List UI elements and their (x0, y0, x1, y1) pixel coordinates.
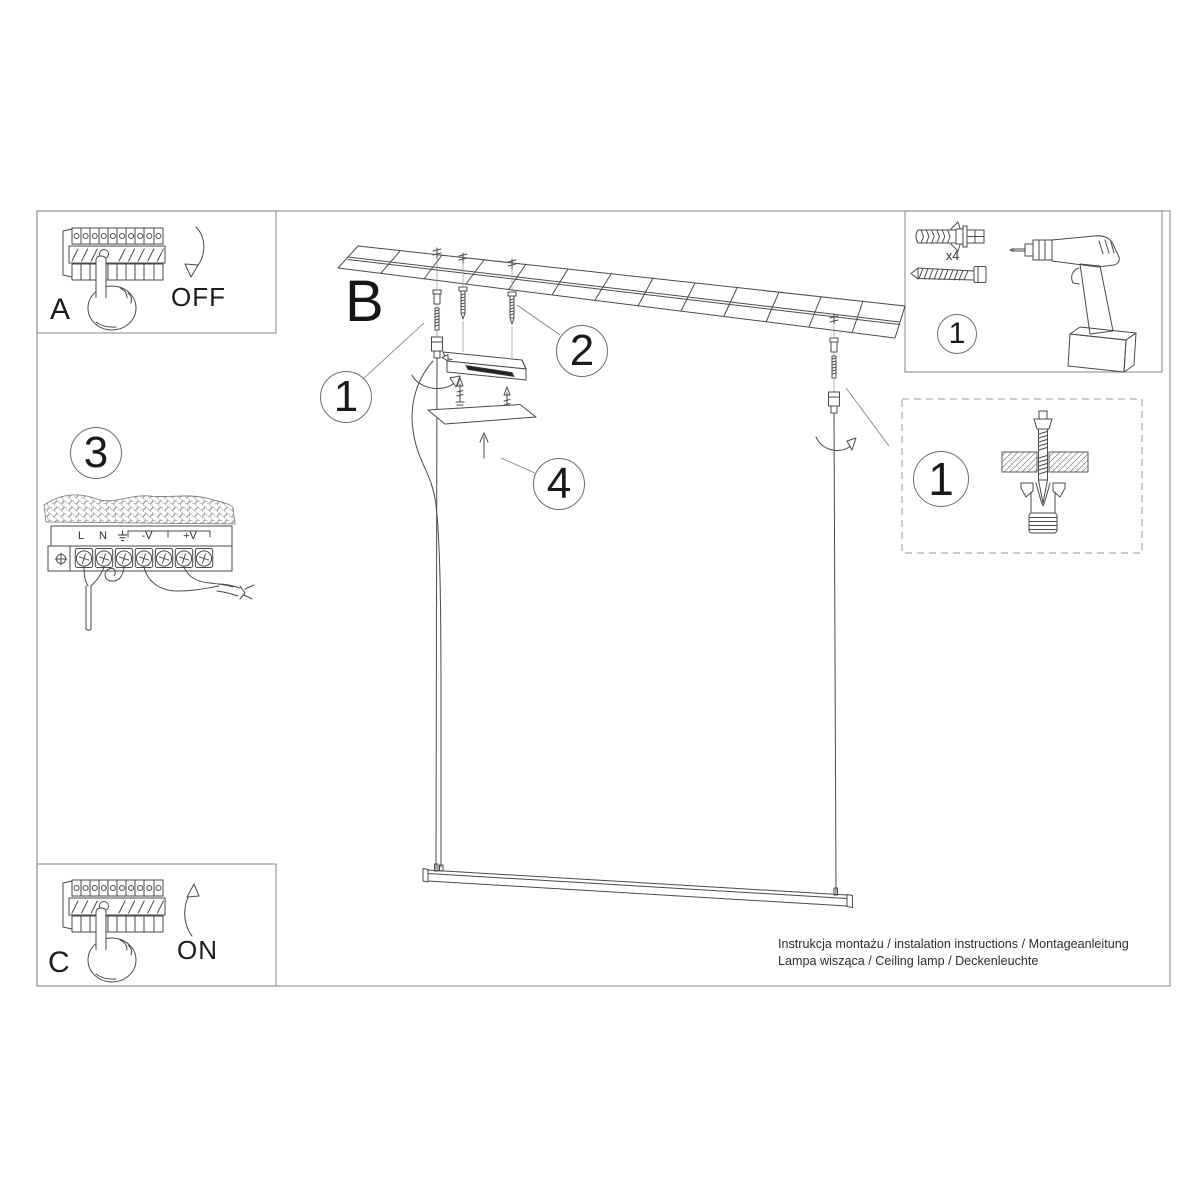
callout-suspension-left: 1 (320, 371, 372, 423)
callout-number: 3 (84, 428, 108, 478)
perforated-plate (44, 495, 235, 524)
up-arrow-icon (480, 433, 488, 458)
cover-plate (428, 405, 536, 425)
terminal-label-minusV: -V (142, 531, 153, 542)
wall-anchor (916, 222, 984, 251)
mounting-screw (459, 287, 467, 319)
threaded-stud (433, 290, 441, 330)
terminal-label-N: N (99, 531, 107, 542)
polarity-bracket (128, 531, 210, 537)
panel-c-label: C (48, 948, 70, 978)
wire-gripper (432, 337, 443, 358)
terminal-screws (75, 549, 212, 568)
anchor-quantity-label: x4 (946, 250, 959, 263)
on-arrow-icon (185, 884, 199, 936)
leader-lines (363, 305, 889, 473)
footer-line-2: Lampa wisząca / Ceiling lamp / Deckenleu… (778, 953, 1129, 970)
panel-a-label: A (50, 295, 70, 325)
instruction-line-art (0, 0, 1200, 1200)
terminal-block-illustration (44, 495, 254, 630)
callout-wiring-step: 3 (70, 427, 122, 479)
suspension-holder (1021, 483, 1065, 533)
mounting-hole (55, 553, 67, 565)
anchor-detail-illustration (1002, 411, 1088, 533)
suspension-wire (436, 358, 437, 869)
callout-cover-plate: 4 (533, 458, 585, 510)
callout-number: 4 (547, 459, 571, 509)
terminal-label-L: L (78, 531, 84, 542)
canopy-assembly (412, 258, 536, 869)
callout-number: 1 (334, 372, 358, 422)
rotate-arrow-icon (816, 437, 856, 451)
callout-mounting-screws: 2 (556, 325, 608, 377)
page-border (37, 211, 1170, 986)
mount-marks (433, 248, 838, 324)
earth-ground-icon (117, 530, 128, 542)
footer-line-1: Instrukcja montażu / instalation instruc… (778, 936, 1129, 953)
callout-number: 1 (928, 452, 954, 506)
anchor-screw (911, 267, 986, 283)
canopy-box (442, 352, 526, 380)
footer-text: Instrukcja montażu / instalation instruc… (778, 936, 1129, 969)
right-suspension (816, 326, 856, 893)
callout-number: 1 (949, 317, 966, 351)
callout-number: 2 (570, 326, 594, 376)
panel-c-switch-state: ON (177, 937, 218, 963)
terminal-label-plusV: +V (183, 531, 197, 542)
instruction-sheet: A OFF C ON B 3 1 2 4 1 1 x4 L N -V +V In… (0, 0, 1200, 1200)
mounting-screw (508, 292, 516, 324)
wiring (84, 567, 254, 630)
pointing-hand-icon (88, 256, 136, 330)
callout-anchor-detail: 1 (913, 451, 969, 507)
off-arrow-icon (185, 227, 204, 277)
drill-icon (1010, 236, 1136, 372)
lamp-bar (423, 864, 853, 908)
main-view-label: B (345, 273, 384, 331)
callout-tools: 1 (937, 314, 977, 354)
breaker-and-hand-illustration (63, 228, 165, 330)
panel-a-switch-state: OFF (171, 284, 226, 310)
